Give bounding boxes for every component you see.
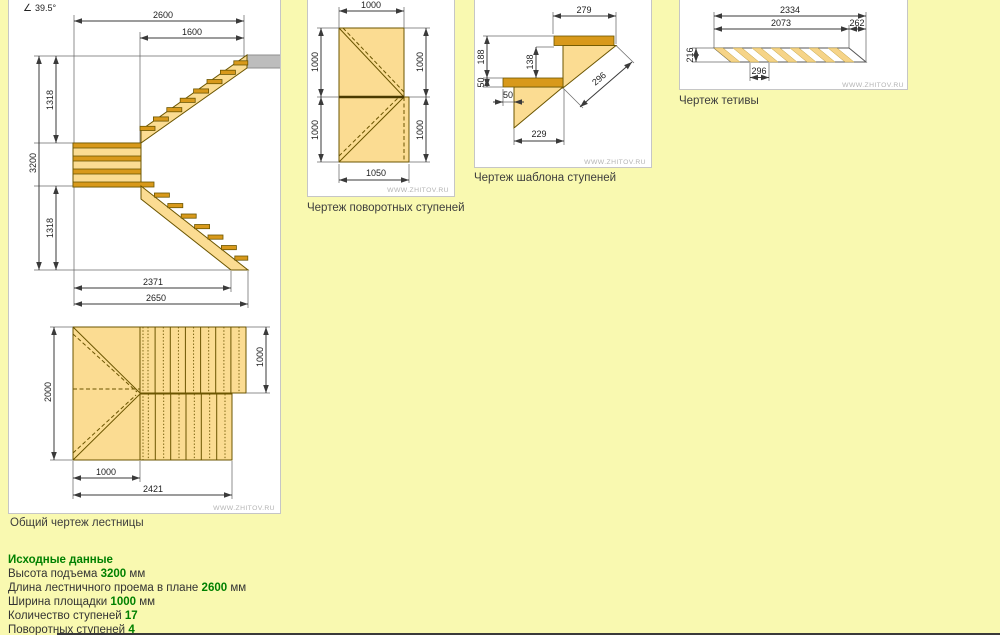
landing-side-view bbox=[73, 143, 154, 187]
step-template-svg: 279 188 50 138 50 296 229 WWW.ZHITOV.RU bbox=[475, 0, 651, 167]
row-label: Длина лестничного проема в плане bbox=[8, 582, 198, 594]
row-label: Высота подъема bbox=[8, 568, 97, 580]
source-data-row: Длина лестничного проема в плане 2600 мм bbox=[8, 581, 246, 595]
caption-step-template: Чертеж шаблона ступеней bbox=[474, 172, 616, 184]
plan-view: 1000 2000 1000 2421 bbox=[43, 327, 270, 499]
dim-nosing: 50 bbox=[503, 90, 513, 100]
stringer-svg: 2334 2073 262 216 296 WWW.ZHITOV.RU bbox=[680, 0, 907, 89]
panel-step-template: 279 188 50 138 50 296 229 WWW.ZHITOV.RU bbox=[474, 0, 652, 168]
source-data-row: Высота подъема 3200 мм bbox=[8, 567, 246, 581]
lower-flight-treads bbox=[154, 193, 247, 260]
dim-tread-depth: 279 bbox=[576, 5, 591, 15]
dim-left-upper: 1000 bbox=[310, 52, 320, 72]
dim-flight-width: 1000 bbox=[255, 347, 265, 367]
upper-step-wedge bbox=[563, 46, 616, 89]
dim-cut-length: 2073 bbox=[771, 18, 791, 28]
row-unit: мм bbox=[129, 568, 145, 580]
row-label: Количество ступеней bbox=[8, 610, 122, 622]
plan-landing bbox=[73, 327, 140, 460]
row-value: 2600 bbox=[202, 582, 228, 594]
row-value: 3200 bbox=[101, 568, 127, 580]
panel-stringer: 2334 2073 262 216 296 WWW.ZHITOV.RU bbox=[679, 0, 908, 90]
dim-upper-flight-run: 1600 bbox=[182, 27, 202, 37]
overall-drawing-svg: ∠ 39.5° 2600 bbox=[9, 0, 280, 513]
dim-stair-angle: 39.5° bbox=[35, 3, 57, 13]
panel-turning-steps: 1000 1000 1000 1000 1000 1050 WWW.ZHITOV… bbox=[307, 0, 455, 197]
dim-opening-length: 2600 bbox=[153, 10, 173, 20]
row-unit: мм bbox=[230, 582, 246, 594]
dim-right-upper: 1000 bbox=[415, 52, 425, 72]
turning-steps-svg: 1000 1000 1000 1000 1000 1050 WWW.ZHITOV… bbox=[308, 0, 454, 196]
upper-tread bbox=[554, 36, 614, 46]
lower-tread bbox=[503, 78, 563, 87]
dim-stringer-width: 216 bbox=[685, 47, 695, 62]
caption-overall-drawing: Общий чертеж лестницы bbox=[10, 517, 144, 529]
row-value: 17 bbox=[125, 610, 138, 622]
turning-step-lower bbox=[339, 97, 409, 162]
source-data-row: Ширина площадки 1000 мм bbox=[8, 595, 246, 609]
dim-left-lower: 1000 bbox=[310, 120, 320, 140]
dim-lower-rise: 1318 bbox=[45, 218, 55, 238]
dim-total-run: 2650 bbox=[146, 293, 166, 303]
dim-total-length: 2334 bbox=[780, 5, 800, 15]
dim-plan-depth: 2000 bbox=[43, 382, 53, 402]
row-label: Ширина площадки bbox=[8, 596, 107, 608]
dim-landing-width: 1000 bbox=[96, 467, 116, 477]
watermark: WWW.ZHITOV.RU bbox=[584, 159, 646, 166]
source-data-heading: Исходные данные bbox=[8, 553, 246, 567]
dim-rise-clear: 138 bbox=[525, 54, 535, 69]
dim-bottom-width: 1050 bbox=[366, 168, 386, 178]
watermark: WWW.ZHITOV.RU bbox=[213, 505, 275, 512]
dim-tread-thickness: 50 bbox=[476, 77, 486, 87]
caption-stringer: Чертеж тетивы bbox=[679, 95, 759, 107]
dim-plan-length: 2421 bbox=[143, 484, 163, 494]
watermark: WWW.ZHITOV.RU bbox=[387, 187, 449, 194]
lower-step-wedge bbox=[514, 87, 563, 128]
watermark: WWW.ZHITOV.RU bbox=[842, 82, 904, 89]
dim-upper-rise: 1318 bbox=[45, 90, 55, 110]
panel-overall-drawing: ∠ 39.5° 2600 bbox=[8, 0, 281, 514]
row-value: 1000 bbox=[110, 596, 136, 608]
dim-run: 229 bbox=[531, 129, 546, 139]
dim-step-pitch: 296 bbox=[751, 66, 766, 76]
dim-rise-total: 188 bbox=[476, 49, 486, 64]
dim-lower-flight-run: 2371 bbox=[143, 277, 163, 287]
stair-calculator-page: ∠ 39.5° 2600 bbox=[0, 0, 1000, 635]
row-unit: мм bbox=[139, 596, 155, 608]
extension-line bbox=[616, 46, 634, 64]
angle-icon: ∠ bbox=[23, 3, 32, 14]
caption-turning-steps: Чертеж поворотных ступеней bbox=[307, 202, 465, 214]
extension-line bbox=[563, 88, 583, 108]
dim-top-width: 1000 bbox=[361, 0, 381, 10]
side-view: ∠ 39.5° 2600 bbox=[23, 3, 280, 308]
dim-total-rise: 3200 bbox=[28, 153, 38, 173]
floor-slab bbox=[247, 55, 280, 68]
dim-right-lower: 1000 bbox=[415, 120, 425, 140]
source-data-row: Количество ступеней 17 bbox=[8, 609, 246, 623]
plan-upper-flight bbox=[140, 327, 246, 393]
dim-end-offset: 262 bbox=[849, 18, 864, 28]
source-data-block: Исходные данные Высота подъема 3200 мм Д… bbox=[8, 553, 246, 635]
